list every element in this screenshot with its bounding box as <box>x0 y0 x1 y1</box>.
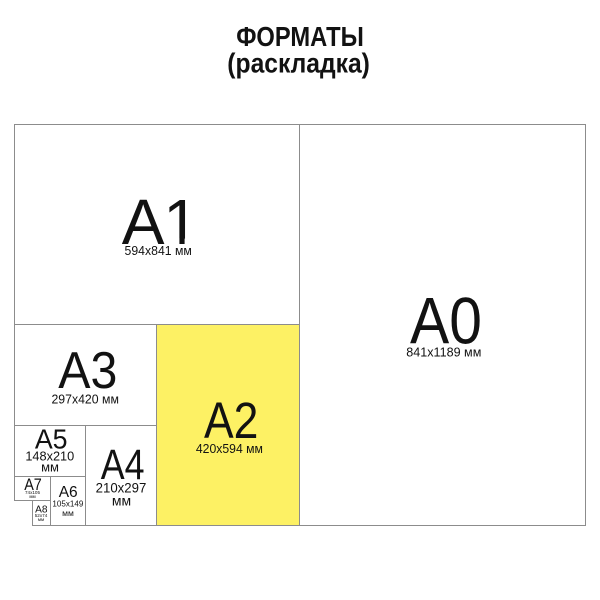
svg-text:мм: мм <box>62 508 74 518</box>
svg-text:мм: мм <box>29 494 35 499</box>
svg-text:841x1189 мм: 841x1189 мм <box>406 346 481 360</box>
svg-text:A2: A2 <box>204 392 258 449</box>
svg-text:мм: мм <box>38 517 44 522</box>
svg-text:(раскладка): (раскладка) <box>227 48 370 79</box>
svg-text:420x594 мм: 420x594 мм <box>196 442 263 456</box>
svg-text:A3: A3 <box>58 342 117 400</box>
svg-text:297x420 мм: 297x420 мм <box>51 392 119 406</box>
svg-text:мм: мм <box>112 493 131 509</box>
svg-text:594x841 мм: 594x841 мм <box>125 244 192 258</box>
svg-text:мм: мм <box>41 460 59 475</box>
